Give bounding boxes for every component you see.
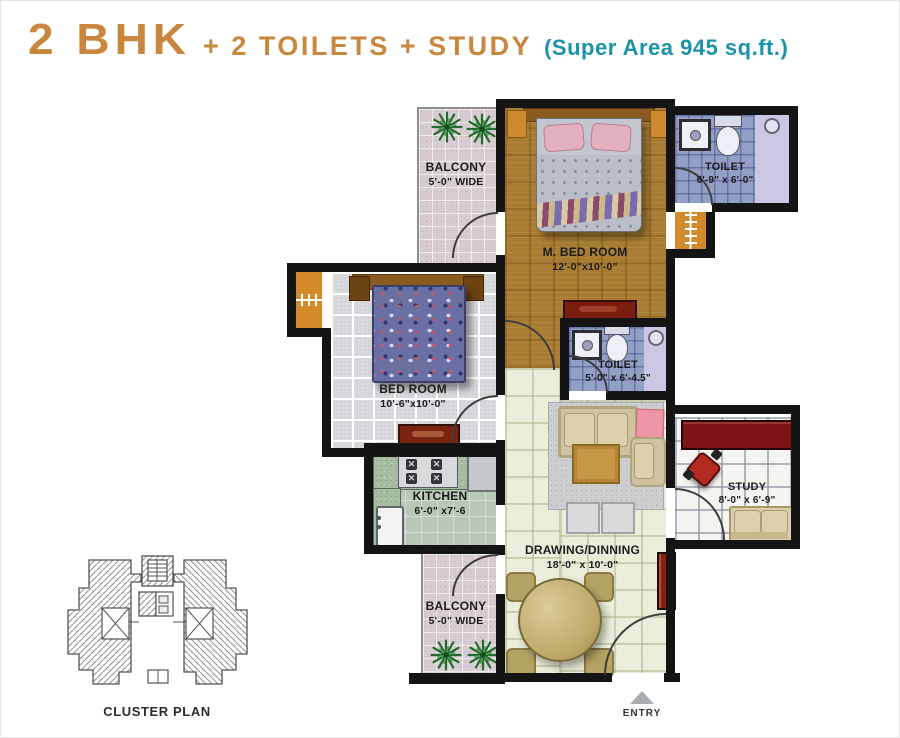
wall [560,391,569,400]
bed [372,285,466,383]
plant-icon [465,112,499,146]
room-name: BALCONY [412,160,500,176]
room-dim: 10'-6"x10'-0" [348,398,478,412]
shower-head-icon [764,118,780,134]
cluster-plan-label: CLUSTER PLAN [57,704,257,721]
wall [364,443,505,452]
side-table-pink [636,409,665,439]
bed-post-right [463,276,484,301]
room-dim: 6'-0" x7'-6 [385,505,495,519]
label-bedroom: BED ROOM 10'-6"x10'-0" [348,382,478,411]
wall [666,405,800,414]
wall [322,328,331,457]
master-bed [536,118,642,232]
entry-arrow-icon [630,691,654,704]
wall [712,203,798,212]
wall [666,106,675,212]
label-toilet-top: TOILET 6'-9" x 6'-0" [675,160,775,187]
floor-plan-page: 2 BHK + 2 TOILETS + STUDY (Super Area 94… [0,0,900,738]
washbasin [679,119,711,151]
wall [666,409,675,488]
bed-post-left [349,276,370,301]
wall [664,673,680,682]
cluster-plan-diagram [55,552,260,700]
toilet-wc [712,115,742,159]
cluster-plan-text: CLUSTER PLAN [57,704,257,721]
label-balcony-top: BALCONY 5'-0" WIDE [412,160,500,189]
plant-icon [429,638,463,672]
pillow [543,123,585,153]
wall [364,443,373,554]
room-name: STUDY [697,480,797,494]
ottoman [601,502,635,534]
wall [287,263,505,272]
room-dim: 5'-0" WIDE [412,615,500,629]
room-dim: 8'-0" x 6'-9" [697,494,797,507]
label-study: STUDY 8'-0" x 6'-9" [697,480,797,507]
label-master-bedroom: M. BED ROOM 12'-0"x10'-0" [525,245,645,274]
ottoman [566,502,600,534]
study-desk [681,420,793,450]
room-name: TOILET [675,160,775,174]
room-name: DRAWING/DINNING [500,543,665,559]
entry-text: ENTRY [612,707,672,720]
wall [496,99,505,212]
entry-label: ENTRY [612,707,672,720]
room-name: KITCHEN [385,489,495,505]
room-dim: 6'-9" x 6'-0" [675,174,775,187]
wall [364,545,505,554]
room-dim: 12'-0"x10'-0" [525,261,645,275]
room-name: TOILET [566,358,670,372]
stove: ✕✕ ✕✕ [398,455,458,488]
wardrobe-master [675,212,706,249]
wall [789,106,798,212]
wall [666,538,675,682]
room-dim: 5'-0" WIDE [412,176,500,190]
wall [666,106,798,115]
room-name: BED ROOM [348,382,478,398]
page-title: 2 BHK + 2 TOILETS + STUDY (Super Area 94… [28,12,788,66]
label-balcony-bottom: BALCONY 5'-0" WIDE [412,599,500,628]
title-super-area: (Super Area 945 sq.ft.) [544,35,788,61]
wall [496,673,612,682]
plant-icon [430,110,464,144]
wall [496,255,505,395]
label-kitchen: KITCHEN 6'-0" x7'-6 [385,489,495,518]
wall [496,99,675,108]
label-toilet-mid: TOILET 5'-0" x 6'-4.5" [566,358,670,385]
wardrobe-bedroom [296,272,322,328]
room-name: BALCONY [412,599,500,615]
room-dim: 18'-0" x 10'-0" [500,559,665,573]
label-drawing-dining: DRAWING/DINNING 18'-0" x 10'-0" [500,543,665,572]
dresser-handle [579,306,617,312]
room-dim: 5'-0" x 6'-4.5" [566,372,670,385]
plant-icon [466,638,500,672]
wall [409,673,505,684]
wall [791,405,800,549]
wall [606,391,675,400]
armchair [630,437,666,487]
wall [672,540,800,549]
room-name: M. BED ROOM [525,245,645,261]
dining-table [518,578,602,662]
wall [287,263,296,337]
coffee-table [572,444,620,484]
title-bhk: 2 BHK [28,13,191,64]
study-loveseat [729,506,794,544]
title-features: + 2 TOILETS + STUDY [203,31,532,62]
nightstand-right [650,110,667,138]
wall [560,318,675,327]
shower-head-icon [648,330,664,346]
pillow [590,123,632,153]
dresser-handle [412,431,444,437]
nightstand-left [507,110,527,138]
